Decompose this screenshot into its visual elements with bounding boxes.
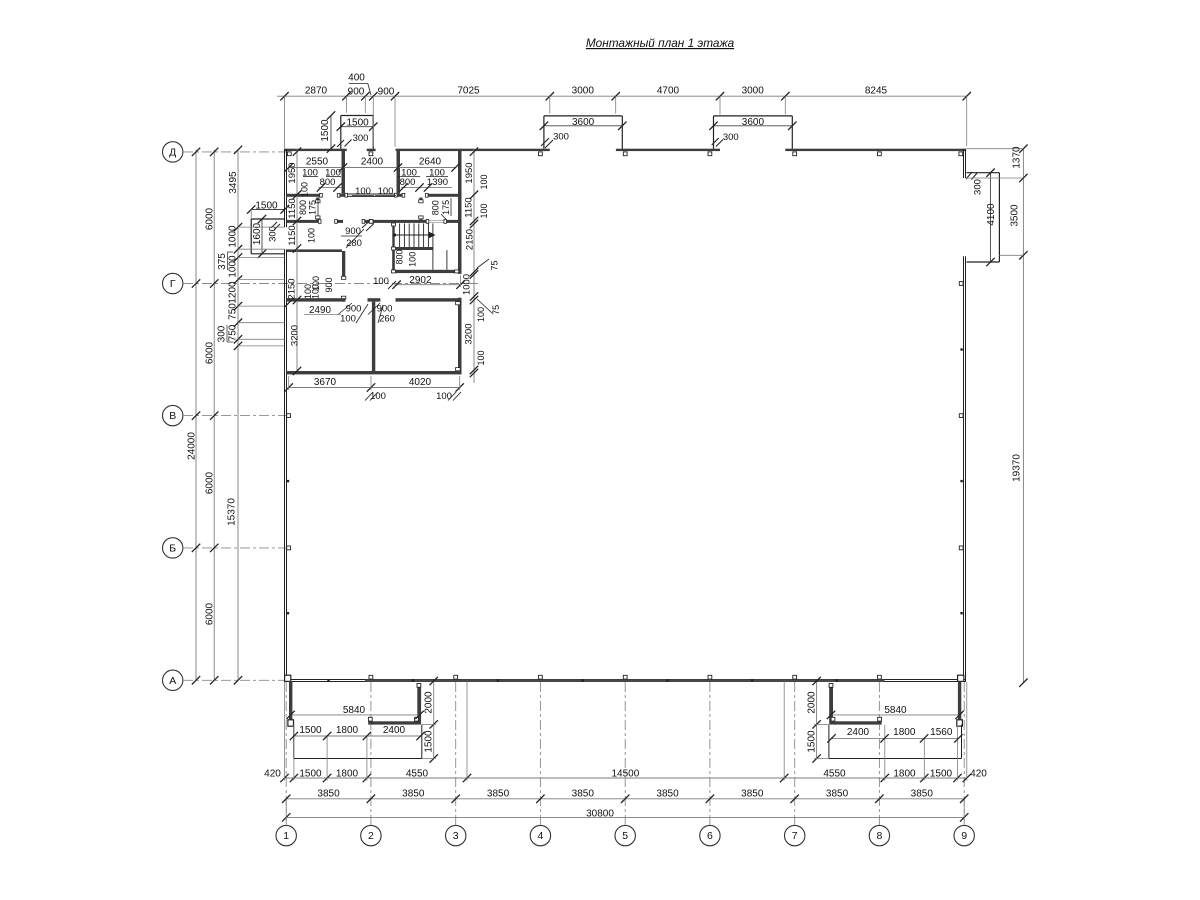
svg-text:1600: 1600 [252,222,263,245]
svg-text:6000: 6000 [204,341,215,364]
svg-text:4550: 4550 [823,769,846,780]
svg-text:3000: 3000 [572,85,595,96]
svg-text:420: 420 [970,769,987,780]
svg-text:1200: 1200 [228,281,239,304]
svg-text:7: 7 [792,830,798,842]
svg-text:2150: 2150 [286,278,297,299]
svg-text:1500: 1500 [299,725,322,736]
svg-text:800: 800 [395,249,405,264]
svg-text:1800: 1800 [336,725,359,736]
svg-text:1950: 1950 [464,162,475,183]
svg-text:24000: 24000 [186,432,197,460]
svg-text:4: 4 [537,830,543,842]
svg-text:А: А [169,675,176,687]
svg-text:375: 375 [217,253,228,270]
svg-text:1500: 1500 [299,769,322,780]
svg-text:5840: 5840 [343,705,366,716]
svg-text:3850: 3850 [741,789,764,800]
svg-text:3850: 3850 [911,789,934,800]
svg-text:2550: 2550 [306,156,329,167]
svg-text:100: 100 [476,350,486,365]
svg-text:100: 100 [479,203,489,218]
svg-text:3000: 3000 [742,85,765,96]
svg-text:4020: 4020 [409,377,432,388]
svg-text:420: 420 [264,769,281,780]
svg-text:100: 100 [436,391,452,402]
svg-text:3200: 3200 [464,323,475,344]
svg-text:Б: Б [169,543,176,555]
svg-text:3850: 3850 [487,789,510,800]
svg-text:900: 900 [378,87,395,98]
svg-text:3200: 3200 [289,325,300,346]
svg-text:3600: 3600 [742,117,765,128]
svg-text:175: 175 [307,200,317,215]
svg-text:800: 800 [400,177,416,188]
svg-text:1390: 1390 [427,177,448,188]
svg-text:1500: 1500 [424,730,435,753]
svg-text:2870: 2870 [305,85,328,96]
svg-text:9: 9 [961,830,967,842]
svg-text:30800: 30800 [586,808,614,819]
svg-text:2000: 2000 [806,691,817,714]
svg-text:175: 175 [441,200,451,215]
svg-text:8: 8 [876,830,882,842]
svg-text:900: 900 [345,226,361,237]
svg-text:260: 260 [379,314,395,325]
svg-text:3850: 3850 [317,789,340,800]
svg-text:300: 300 [723,132,739,143]
svg-text:5: 5 [622,830,628,842]
svg-text:1500: 1500 [346,117,369,128]
svg-text:1150: 1150 [463,197,474,217]
svg-text:3850: 3850 [572,789,595,800]
svg-text:3495: 3495 [228,171,239,194]
svg-text:2400: 2400 [361,156,384,167]
svg-text:75: 75 [491,305,501,315]
svg-text:1000: 1000 [228,225,239,248]
svg-text:7025: 7025 [457,85,480,96]
svg-text:3850: 3850 [402,789,425,800]
svg-text:3670: 3670 [314,377,337,388]
svg-text:1500: 1500 [806,730,817,753]
svg-text:3: 3 [453,830,459,842]
svg-text:3600: 3600 [572,117,595,128]
svg-text:1000: 1000 [461,274,472,295]
svg-text:900: 900 [324,277,334,292]
svg-text:1950: 1950 [287,162,298,183]
svg-text:2400: 2400 [383,725,406,736]
svg-text:6: 6 [707,830,713,842]
svg-text:1150: 1150 [287,225,298,245]
svg-text:750: 750 [228,303,239,320]
svg-text:300: 300 [216,325,227,342]
svg-text:4100: 4100 [986,203,997,226]
svg-text:300: 300 [267,226,278,242]
svg-text:100: 100 [476,307,486,322]
svg-text:19370: 19370 [1011,454,1022,482]
svg-text:5840: 5840 [884,705,907,716]
svg-text:750: 750 [228,324,239,341]
svg-text:100: 100 [408,252,418,267]
svg-text:3850: 3850 [826,789,849,800]
svg-text:100: 100 [306,228,316,243]
svg-text:В: В [169,410,176,422]
svg-text:800: 800 [298,200,308,215]
svg-text:1500: 1500 [320,119,331,142]
svg-text:1800: 1800 [336,769,359,780]
svg-text:900: 900 [348,87,365,98]
svg-text:300: 300 [553,132,569,143]
svg-text:2400: 2400 [847,727,870,738]
svg-text:2902: 2902 [409,275,432,286]
svg-text:3850: 3850 [656,789,679,800]
svg-text:2: 2 [368,830,374,842]
svg-text:1: 1 [283,830,289,842]
svg-text:300: 300 [972,179,983,195]
svg-text:14500: 14500 [611,769,639,780]
svg-text:100: 100 [373,276,389,287]
svg-text:3500: 3500 [1009,204,1020,227]
svg-text:2150: 2150 [465,229,476,250]
svg-text:100: 100 [299,182,309,197]
svg-text:1560: 1560 [930,727,953,738]
svg-text:2000: 2000 [424,691,435,714]
svg-text:6000: 6000 [204,602,215,625]
svg-text:Д: Д [169,147,176,159]
svg-text:6000: 6000 [204,471,215,494]
svg-text:75: 75 [489,260,499,270]
svg-text:2640: 2640 [419,156,442,167]
svg-text:400: 400 [348,73,365,84]
svg-text:300: 300 [353,133,369,144]
svg-text:1800: 1800 [893,769,916,780]
svg-text:800: 800 [431,200,441,215]
svg-text:8245: 8245 [865,85,888,96]
svg-text:1500: 1500 [255,201,278,212]
svg-text:1000: 1000 [228,255,239,278]
svg-text:1500: 1500 [930,769,953,780]
svg-text:6000: 6000 [204,207,215,230]
svg-text:15370: 15370 [226,498,237,526]
svg-text:1370: 1370 [1012,146,1023,169]
svg-text:Г: Г [170,278,176,290]
svg-text:4700: 4700 [657,85,680,96]
svg-text:100: 100 [311,276,321,291]
svg-text:100: 100 [340,314,356,325]
svg-text:1150: 1150 [287,198,298,218]
svg-text:1800: 1800 [893,727,916,738]
svg-text:4550: 4550 [406,769,429,780]
svg-text:Монтажный план 1 этажа: Монтажный план 1 этажа [586,36,735,50]
svg-text:100: 100 [479,174,489,189]
